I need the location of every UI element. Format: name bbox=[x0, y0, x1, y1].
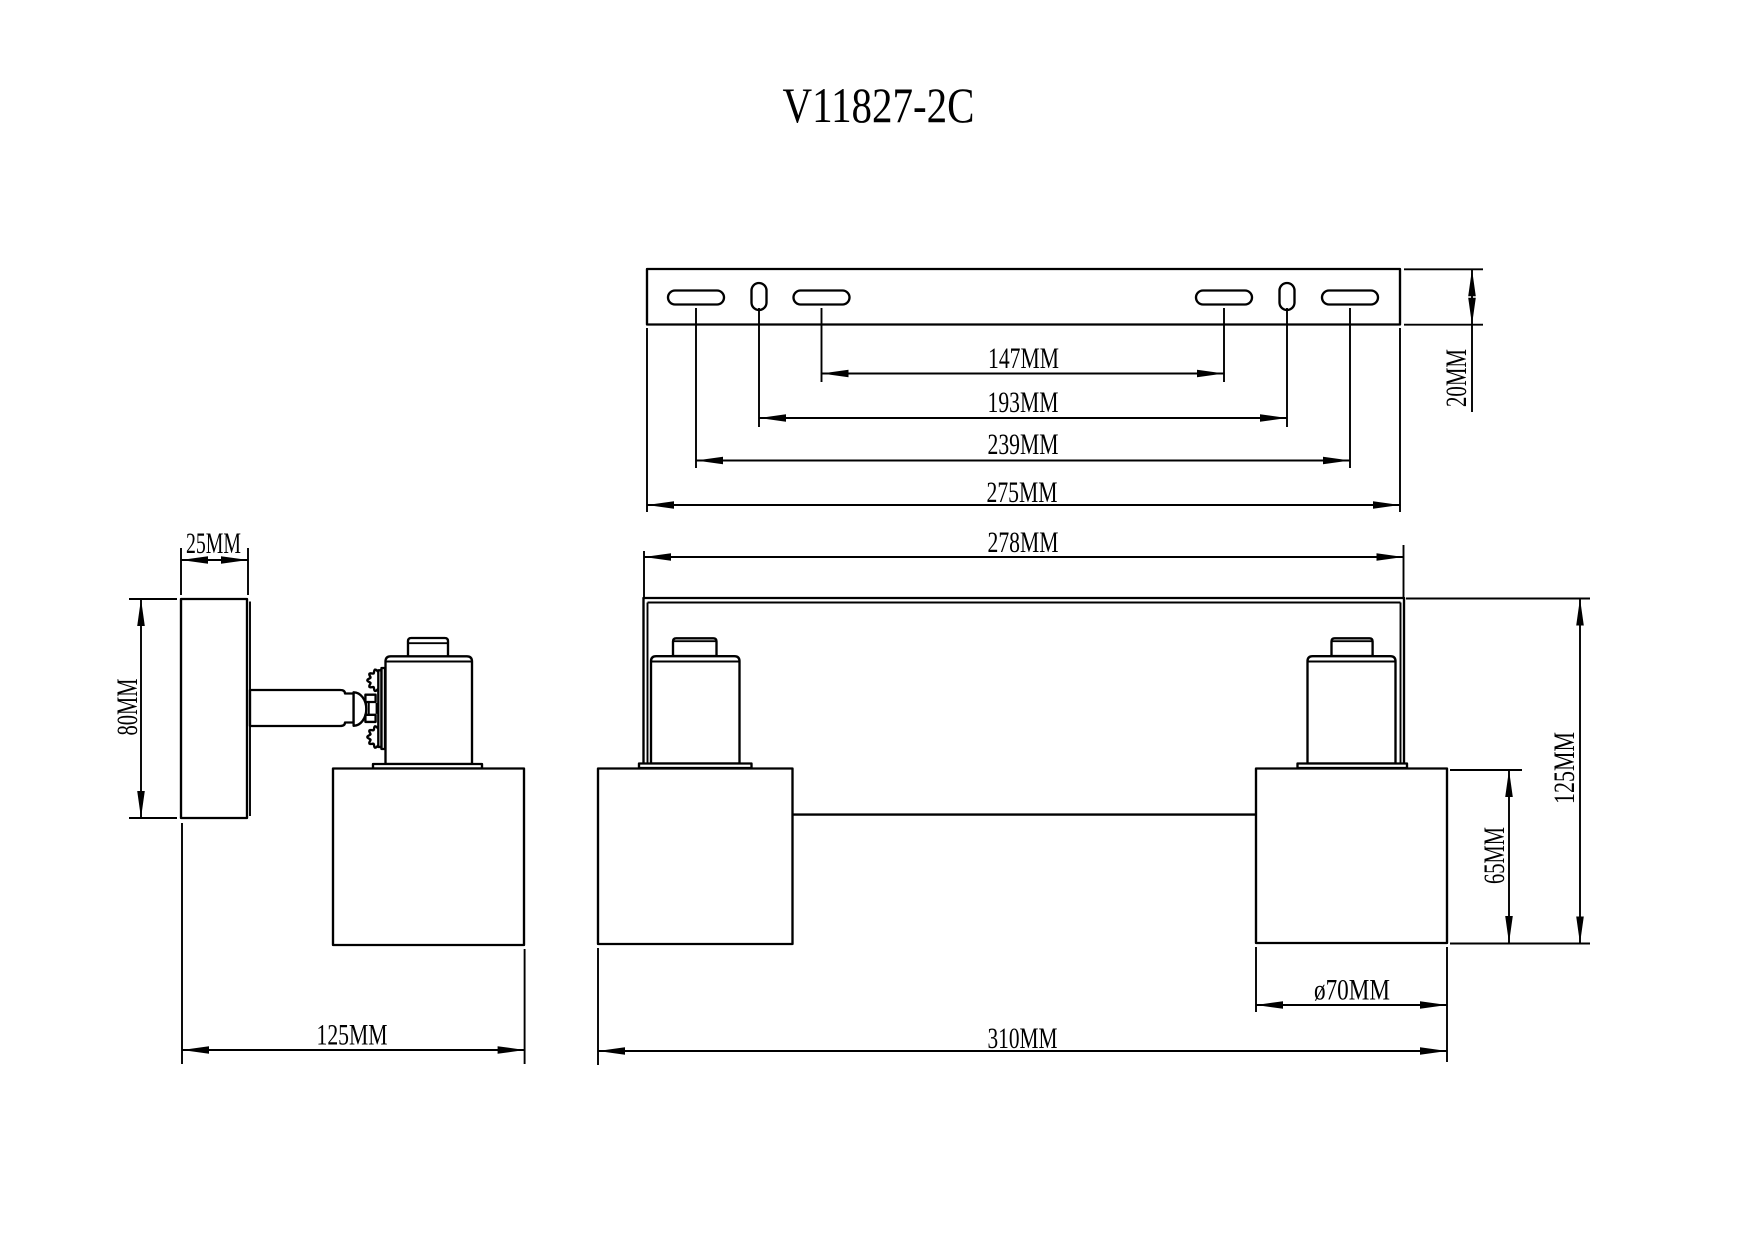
svg-text:147MM: 147MM bbox=[988, 342, 1059, 375]
svg-text:125MM: 125MM bbox=[317, 1019, 388, 1052]
svg-text:275MM: 275MM bbox=[987, 476, 1058, 509]
svg-text:V11827-2C: V11827-2C bbox=[783, 77, 975, 133]
svg-text:80MM: 80MM bbox=[111, 679, 144, 736]
svg-text:278MM: 278MM bbox=[988, 526, 1059, 559]
svg-text:ø70MM: ø70MM bbox=[1314, 974, 1390, 1007]
svg-text:25MM: 25MM bbox=[186, 527, 241, 560]
svg-text:239MM: 239MM bbox=[988, 428, 1059, 461]
svg-text:310MM: 310MM bbox=[988, 1022, 1058, 1055]
svg-text:65MM: 65MM bbox=[1478, 827, 1511, 884]
svg-text:193MM: 193MM bbox=[988, 386, 1059, 419]
svg-text:20MM: 20MM bbox=[1440, 349, 1473, 407]
svg-text:125MM: 125MM bbox=[1548, 732, 1581, 804]
